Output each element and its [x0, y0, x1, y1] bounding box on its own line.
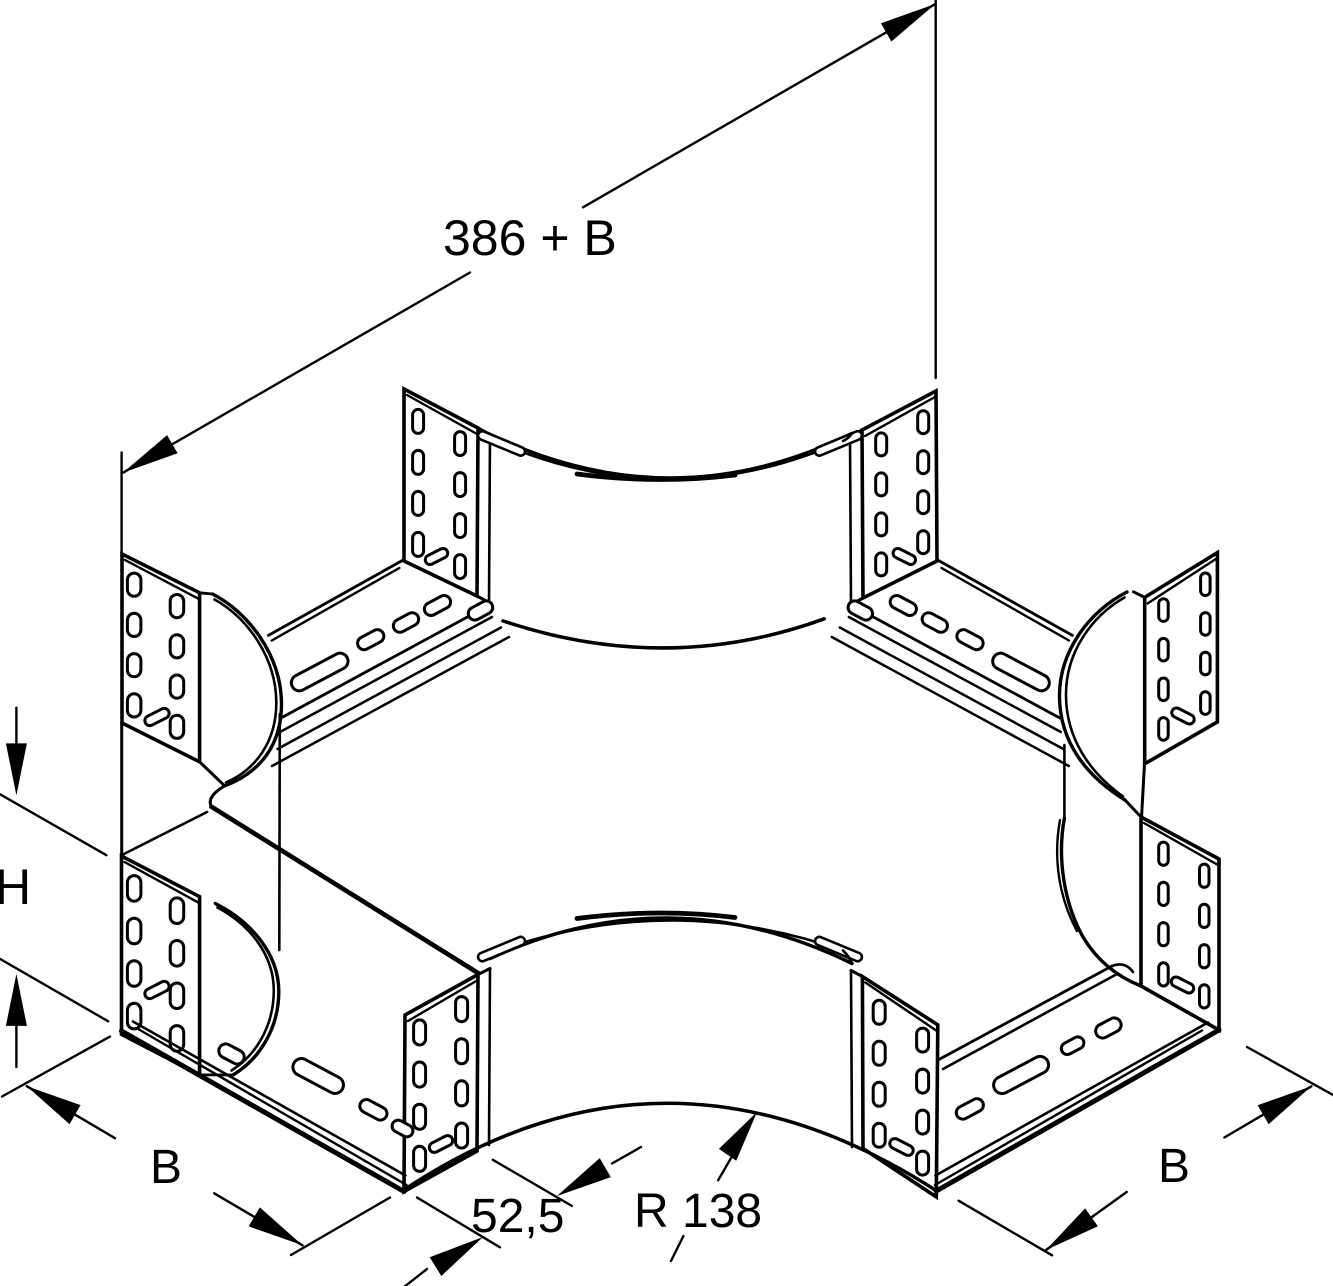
svg-text:52,5: 52,5	[471, 1190, 564, 1243]
svg-text:R 138: R 138	[634, 1185, 762, 1238]
svg-text:B: B	[150, 1141, 182, 1194]
svg-text:H: H	[0, 859, 31, 915]
svg-text:B: B	[1158, 1140, 1190, 1193]
svg-text:386 + B: 386 + B	[443, 210, 617, 266]
